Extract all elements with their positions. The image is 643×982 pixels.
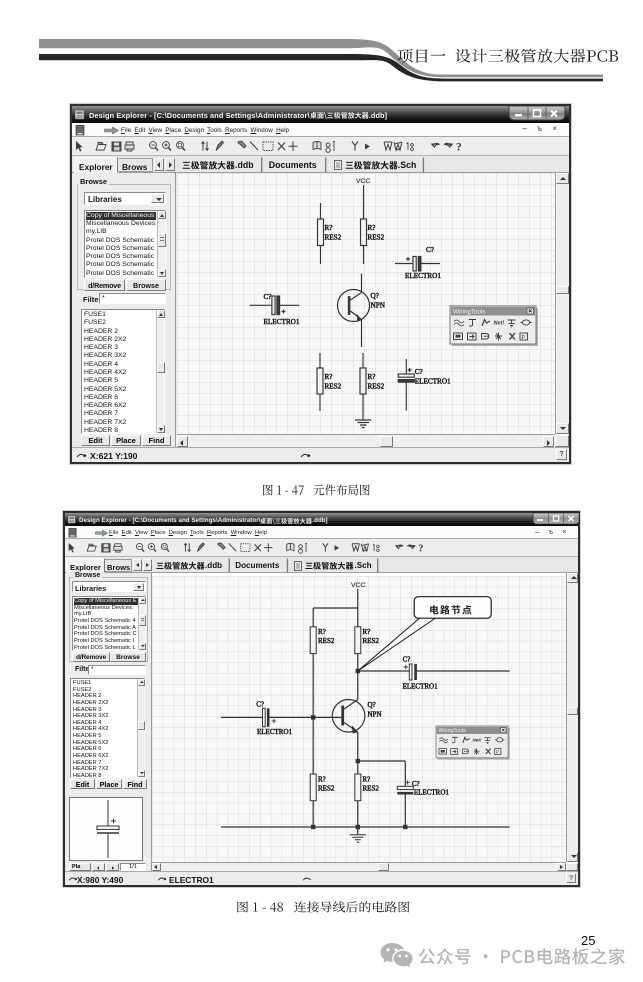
svg-text:Net!: Net! (494, 321, 505, 327)
svg-text:C?: C? (415, 368, 423, 376)
svg-text:R?: R? (368, 373, 376, 381)
svg-text:C?: C? (403, 656, 411, 664)
svg-text:R?: R? (325, 373, 333, 381)
svg-text:C?: C? (264, 293, 272, 301)
svg-text:?: ? (456, 142, 462, 154)
svg-text:ELECTRO1: ELECTRO1 (414, 789, 449, 797)
svg-text:Net!: Net! (472, 738, 481, 743)
svg-text:Q?: Q? (368, 701, 376, 709)
svg-text:R?: R? (318, 776, 326, 784)
svg-text:Q?: Q? (371, 292, 379, 300)
svg-text:C?: C? (426, 246, 434, 254)
svg-text:RES2: RES2 (318, 785, 335, 793)
svg-text:R?: R? (363, 776, 371, 784)
svg-text:ELECTRO1: ELECTRO1 (403, 683, 438, 691)
svg-text:R?: R? (363, 628, 371, 636)
svg-text:NPN: NPN (371, 302, 386, 310)
svg-text:RES2: RES2 (363, 637, 380, 645)
svg-text:WiringTools: WiringTools (439, 728, 467, 734)
svg-text:ELECTRO1: ELECTRO1 (264, 318, 300, 326)
svg-text:P: P (522, 335, 526, 341)
svg-text:NPN: NPN (368, 711, 382, 719)
svg-text:RES2: RES2 (325, 383, 342, 391)
svg-text:P: P (496, 749, 499, 754)
svg-text:R?: R? (318, 628, 326, 636)
svg-text:WiringTools: WiringTools (453, 308, 486, 315)
svg-text:R?: R? (325, 224, 333, 232)
svg-text:RES2: RES2 (368, 383, 385, 391)
svg-text:ELECTRO1: ELECTRO1 (257, 728, 292, 736)
svg-text:RES2: RES2 (318, 637, 335, 645)
svg-text:ELECTRO1: ELECTRO1 (415, 378, 451, 386)
svg-text:ELECTRO1: ELECTRO1 (405, 272, 441, 280)
svg-text:VCC: VCC (356, 178, 370, 185)
svg-text:RES2: RES2 (325, 234, 342, 242)
svg-text:?: ? (418, 544, 423, 555)
svg-text:VCC: VCC (351, 582, 365, 589)
svg-text:R?: R? (368, 224, 376, 232)
svg-text:RES2: RES2 (363, 785, 380, 793)
svg-text:RES2: RES2 (368, 234, 385, 242)
svg-text:C?: C? (256, 701, 264, 709)
svg-text:C?: C? (412, 780, 420, 788)
